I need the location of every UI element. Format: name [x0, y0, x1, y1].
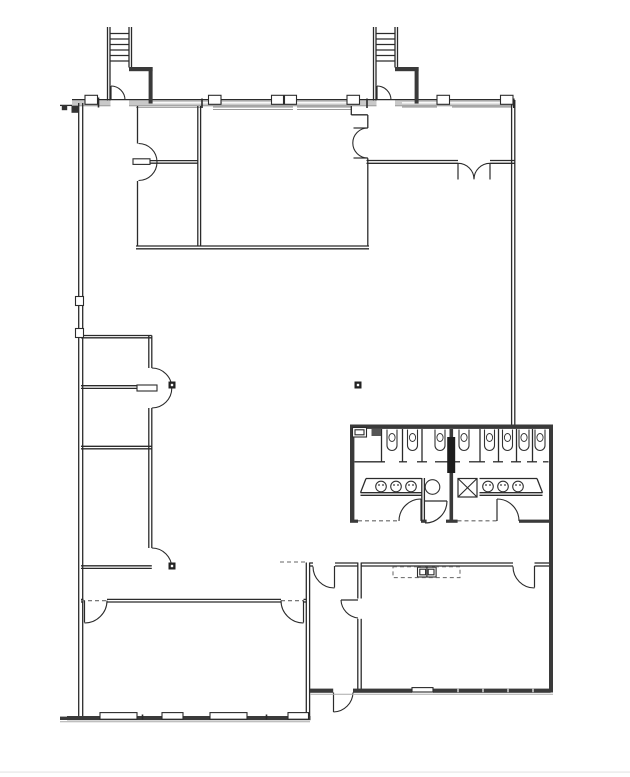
sink-icon — [412, 484, 414, 486]
south-exterior-wall — [60, 717, 67, 720]
floor-plan-canvas — [0, 0, 630, 777]
sink-icon — [515, 484, 517, 486]
restroom-south-wall — [446, 520, 458, 523]
column-block — [272, 95, 284, 104]
sink-icon — [378, 484, 380, 486]
sink-icon — [504, 484, 506, 486]
south-exterior-wall — [310, 689, 333, 693]
stair2-vestibule-wall — [415, 67, 419, 104]
restroom-south-wall — [421, 520, 427, 523]
sink-icon — [489, 484, 491, 486]
restroom-south-wall — [350, 520, 358, 523]
sink-icon — [500, 484, 502, 486]
column-block — [285, 95, 297, 104]
sink-icon — [513, 481, 524, 492]
sink-icon — [483, 481, 494, 492]
west-corner-pier — [72, 106, 79, 113]
column-marker — [357, 384, 359, 386]
window — [162, 713, 183, 720]
kitchen-sink-icon — [420, 569, 426, 575]
window — [288, 713, 309, 720]
window — [100, 713, 137, 720]
sink-icon — [485, 484, 487, 486]
restroom-north-wall — [350, 425, 553, 429]
kitchen-sink-icon — [428, 569, 434, 575]
column-marker — [171, 565, 173, 567]
sink-icon — [382, 484, 384, 486]
floor-plan-page — [0, 0, 630, 777]
plumbing-chase — [447, 437, 455, 473]
sink-icon — [393, 484, 395, 486]
sink-icon — [406, 481, 417, 492]
window — [412, 688, 433, 692]
column-block — [501, 95, 514, 104]
page-edge-line — [0, 771, 630, 772]
window — [210, 713, 247, 720]
column-block — [85, 95, 98, 104]
sink-icon — [391, 481, 402, 492]
dispenser-icon — [372, 429, 382, 437]
sink-icon — [498, 481, 509, 492]
sink-icon — [376, 481, 387, 492]
wall-end-stub — [133, 159, 150, 165]
wall-pilaster — [76, 297, 84, 306]
column-marker — [171, 384, 173, 386]
east-exterior-wall — [549, 425, 553, 693]
sink-icon — [519, 484, 521, 486]
south-exterior-wall — [353, 689, 412, 693]
column-block — [209, 95, 222, 104]
wall-pilaster — [76, 329, 84, 338]
urinal-icon — [355, 430, 364, 435]
restroom-west-wall — [350, 425, 354, 523]
column-block — [347, 95, 360, 104]
column-block — [437, 95, 450, 104]
wall-end-stub — [137, 385, 157, 391]
mop-sink-icon — [425, 480, 440, 495]
restroom-south-wall — [519, 520, 553, 523]
sink-icon — [408, 484, 410, 486]
sink-icon — [397, 484, 399, 486]
stair1-vestibule-wall — [149, 67, 153, 104]
west-corner-pier — [62, 105, 67, 110]
